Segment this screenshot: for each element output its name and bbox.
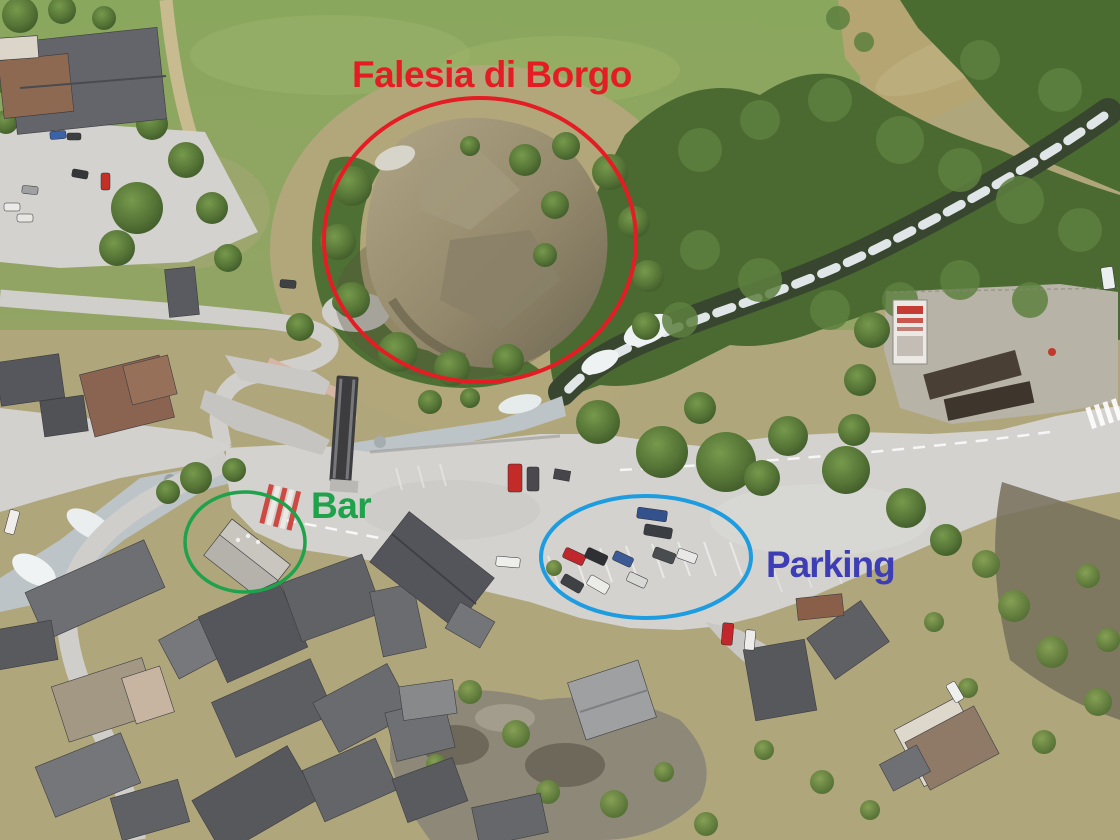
- car-dark: [67, 133, 81, 140]
- tree: [460, 136, 480, 156]
- building-roof: [40, 395, 89, 437]
- terrace-table: [246, 534, 250, 538]
- building-roof: [165, 267, 200, 318]
- tree: [541, 191, 569, 219]
- bar-annotation-label: Bar: [311, 485, 371, 526]
- sign-red-band: [897, 306, 923, 314]
- car-dark: [280, 279, 297, 288]
- sign-photo-area: [897, 336, 923, 356]
- sign-red-band: [897, 318, 923, 323]
- terrace-table: [256, 540, 260, 544]
- crag-annotation-label: Falesia di Borgo: [352, 54, 632, 95]
- car-white: [744, 630, 756, 651]
- hydrant: [1048, 348, 1056, 356]
- parking-bush: [546, 560, 562, 576]
- parking-annotation-label: Parking: [766, 544, 895, 585]
- tree: [533, 243, 557, 267]
- shed-roof: [399, 679, 457, 720]
- building-roof: [0, 354, 65, 406]
- truck-red: [508, 464, 522, 492]
- car-red: [101, 173, 110, 190]
- car-white: [17, 214, 33, 222]
- building-light: [0, 36, 39, 61]
- car-blue: [50, 130, 67, 139]
- car-white: [4, 203, 20, 211]
- annotated-aerial-photo: Falesia di Borgo Bar Parking: [0, 0, 1120, 840]
- car-white-moving: [496, 556, 521, 568]
- car-gray: [22, 185, 39, 194]
- rock-shade: [525, 743, 605, 787]
- house-roof: [743, 639, 817, 721]
- sign-red-band: [897, 327, 923, 331]
- garage-roof-brown: [796, 594, 844, 621]
- van-dark: [527, 467, 539, 491]
- boulder: [374, 436, 386, 448]
- terrace-table: [236, 538, 240, 542]
- tree: [509, 144, 541, 176]
- car-red: [721, 623, 734, 646]
